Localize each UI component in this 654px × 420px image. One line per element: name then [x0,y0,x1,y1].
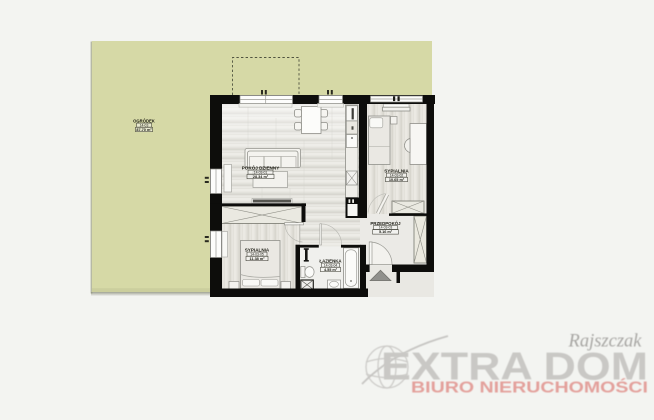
svg-text:14-03-04: 14-03-04 [324,263,338,267]
svg-text:14-03-02: 14-03-02 [390,173,404,177]
svg-text:87.70 m²: 87.70 m² [136,128,152,132]
svg-text:14-03-01: 14-03-01 [254,170,268,174]
svg-text:10.65 m²: 10.65 m² [389,178,405,182]
svg-text:BIURO NIERUCHOMOŚCI: BIURO NIERUCHOMOŚCI [411,379,648,397]
svg-text:11.38 m²: 11.38 m² [250,257,266,261]
svg-text:5.16 m²: 5.16 m² [379,230,393,234]
svg-text:14-03: 14-03 [140,123,149,127]
svg-text:28.34 m²: 28.34 m² [253,175,269,179]
svg-text:14-03-05: 14-03-05 [250,252,264,256]
svg-text:14-03-03: 14-03-03 [379,226,393,230]
svg-text:4.55 m²: 4.55 m² [324,268,338,272]
